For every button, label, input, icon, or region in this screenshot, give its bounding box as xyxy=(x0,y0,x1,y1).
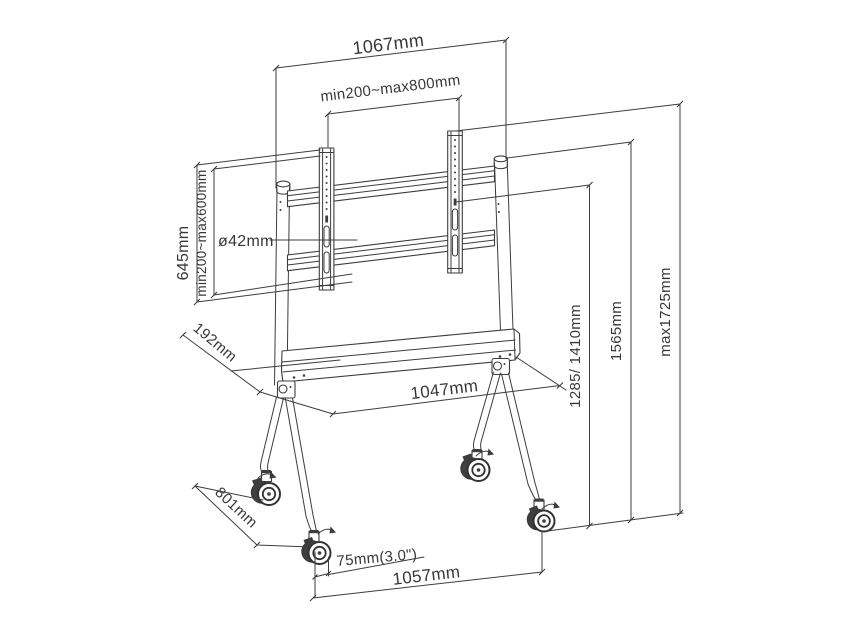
label-mount-heights: 1285/ 1410mm xyxy=(567,304,584,408)
label-column-height: 1565mm xyxy=(608,301,625,361)
right-pole xyxy=(494,156,513,345)
label-caster-size: 75mm(3.0") xyxy=(336,546,418,570)
caster-rear-left xyxy=(251,470,280,505)
dim-top-width-lines xyxy=(276,40,506,188)
caster-rear-right xyxy=(461,449,494,482)
vesa-rail-right xyxy=(448,131,463,273)
leg-rear-left xyxy=(261,397,284,473)
leg-front-left xyxy=(286,398,317,532)
vesa-holes-left xyxy=(326,156,328,210)
dim-vesa-width-lines xyxy=(328,98,459,147)
label-shelf-width: 1047mm xyxy=(409,376,479,403)
caster-front-right xyxy=(527,499,560,532)
left-leg-clamp xyxy=(278,381,296,398)
vesa-rail-left xyxy=(319,148,334,290)
shelf xyxy=(282,329,521,382)
label-pole-diameter: ø42mm xyxy=(218,233,274,250)
right-leg-clamp xyxy=(492,359,510,375)
vesa-holes-right xyxy=(454,139,456,193)
label-vesa-height-range: min200~max600mm xyxy=(194,169,209,296)
label-max-height: max1725mm xyxy=(657,267,674,356)
floor-baseline xyxy=(544,513,683,532)
label-base-width: 1057mm xyxy=(392,562,462,589)
tv-cart-dimension-diagram: 1067mm min200~max800mm 645mm min200~max6… xyxy=(0,0,844,633)
label-top-width: 1067mm xyxy=(351,30,425,58)
stand-drawing xyxy=(251,131,560,564)
dimension-drawing-canvas: 1067mm min200~max800mm 645mm min200~max6… xyxy=(0,0,844,633)
caster-front-left xyxy=(302,527,336,565)
lower-crossbar xyxy=(288,230,495,271)
label-bracket-height: 645mm xyxy=(175,226,192,281)
